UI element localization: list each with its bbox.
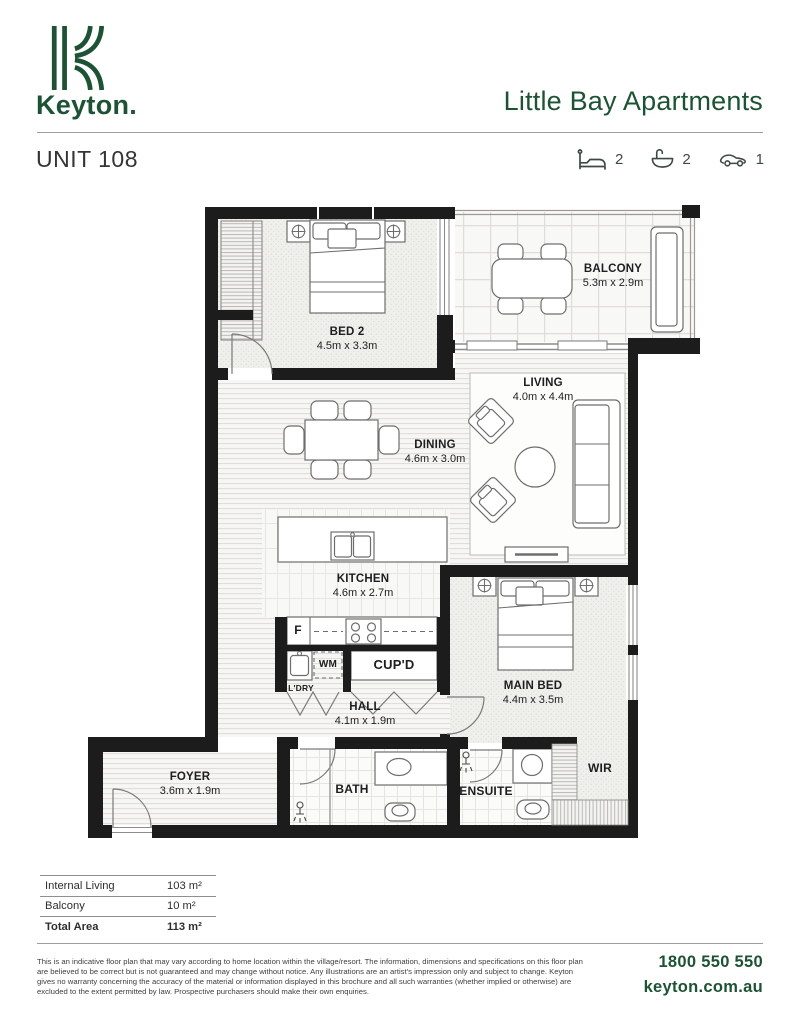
room-label-kitchen: KITCHEN 4.6m x 2.7m (333, 573, 394, 600)
room-label-living: LIVING 4.0m x 4.4m (513, 377, 574, 404)
cars-stat: 1 (718, 149, 764, 170)
contact-block: 1800 550 550 keyton.com.au (644, 950, 763, 1000)
brochure-page: Keyton. Little Bay Apartments UNIT 108 2… (0, 0, 800, 1034)
floor-plan: BED 2 4.5m x 3.3m BALCONY 5.3m x 2.9m LI… (85, 198, 700, 848)
label-laundry: L'DRY (288, 682, 314, 696)
header-divider (37, 132, 763, 133)
table-row-total: Total Area 113 m² (40, 916, 216, 937)
room-label-dining: DINING 4.6m x 3.0m (405, 439, 466, 466)
table-row: Balcony 10 m² (40, 896, 216, 917)
area-value: 113 m² (167, 921, 216, 933)
beds-count: 2 (615, 151, 623, 168)
beds-stat: 2 (576, 147, 623, 173)
room-label-balcony: BALCONY 5.3m x 2.9m (583, 263, 644, 290)
room-label-foyer: FOYER 3.6m x 1.9m (160, 771, 221, 798)
bed-icon (576, 147, 608, 173)
keyton-k-logo-icon (48, 25, 110, 96)
disclaimer-text: This is an indicative floor plan that ma… (37, 957, 590, 997)
cars-count: 1 (756, 151, 764, 168)
project-title: Little Bay Apartments (504, 86, 763, 117)
contact-phone: 1800 550 550 (644, 950, 763, 975)
bath-icon (650, 146, 675, 173)
unit-title: UNIT 108 (36, 146, 138, 173)
baths-stat: 2 (650, 146, 690, 173)
baths-count: 2 (682, 151, 690, 168)
room-label-hall: HALL 4.1m x 1.9m (335, 701, 396, 728)
area-label: Balcony (40, 900, 167, 912)
room-label-bed2: BED 2 4.5m x 3.3m (317, 326, 378, 353)
label-fridge: F (294, 624, 302, 638)
area-value: 103 m² (167, 880, 216, 892)
room-label-main-bed: MAIN BED 4.4m x 3.5m (503, 680, 564, 707)
car-icon (718, 149, 749, 170)
floor-plan-drawing (85, 198, 700, 848)
unit-stats: 2 2 1 (576, 146, 764, 173)
areas-table: Internal Living 103 m² Balcony 10 m² Tot… (40, 875, 216, 937)
contact-website: keyton.com.au (644, 975, 763, 1000)
room-label-ensuite: ENSUITE (459, 785, 512, 799)
table-row: Internal Living 103 m² (40, 875, 216, 896)
label-cupboard: CUP'D (374, 658, 415, 672)
area-value: 10 m² (167, 900, 216, 912)
area-label: Total Area (40, 921, 167, 933)
footer-divider (37, 943, 763, 944)
brand-name: Keyton. (36, 90, 137, 121)
room-label-wir: WIR (588, 762, 612, 776)
label-washing-machine: WM (319, 658, 337, 672)
area-label: Internal Living (40, 880, 167, 892)
room-label-bath: BATH (335, 783, 368, 797)
